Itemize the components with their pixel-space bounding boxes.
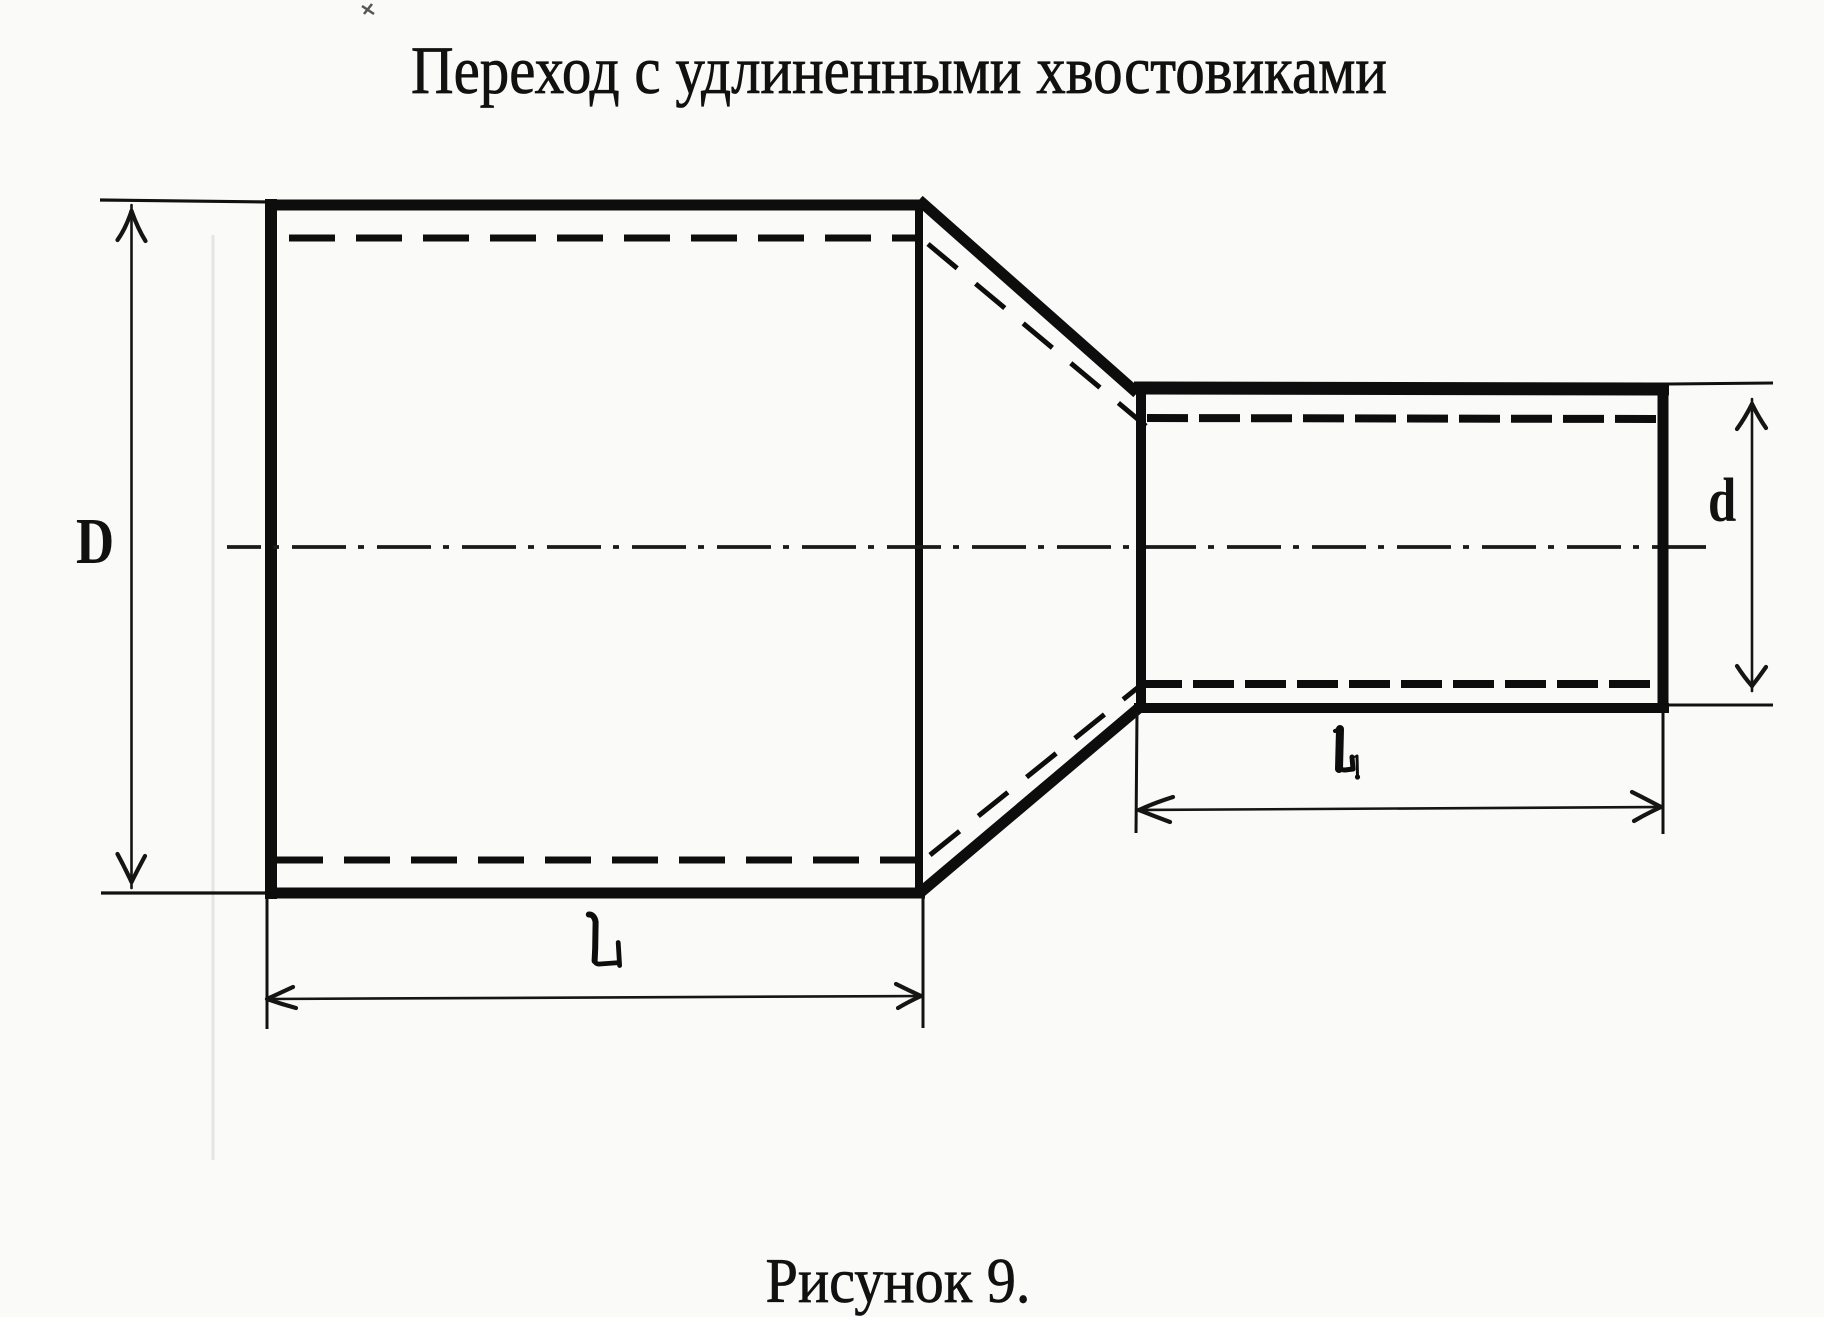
svg-text:d: d	[1708, 466, 1736, 535]
svg-text:D: D	[76, 504, 114, 577]
svg-text:Переход с удлиненными хвостови: Переход с удлиненными хвостовиками	[411, 32, 1387, 108]
svg-text:Рисунок 9.: Рисунок 9.	[766, 1245, 1031, 1316]
